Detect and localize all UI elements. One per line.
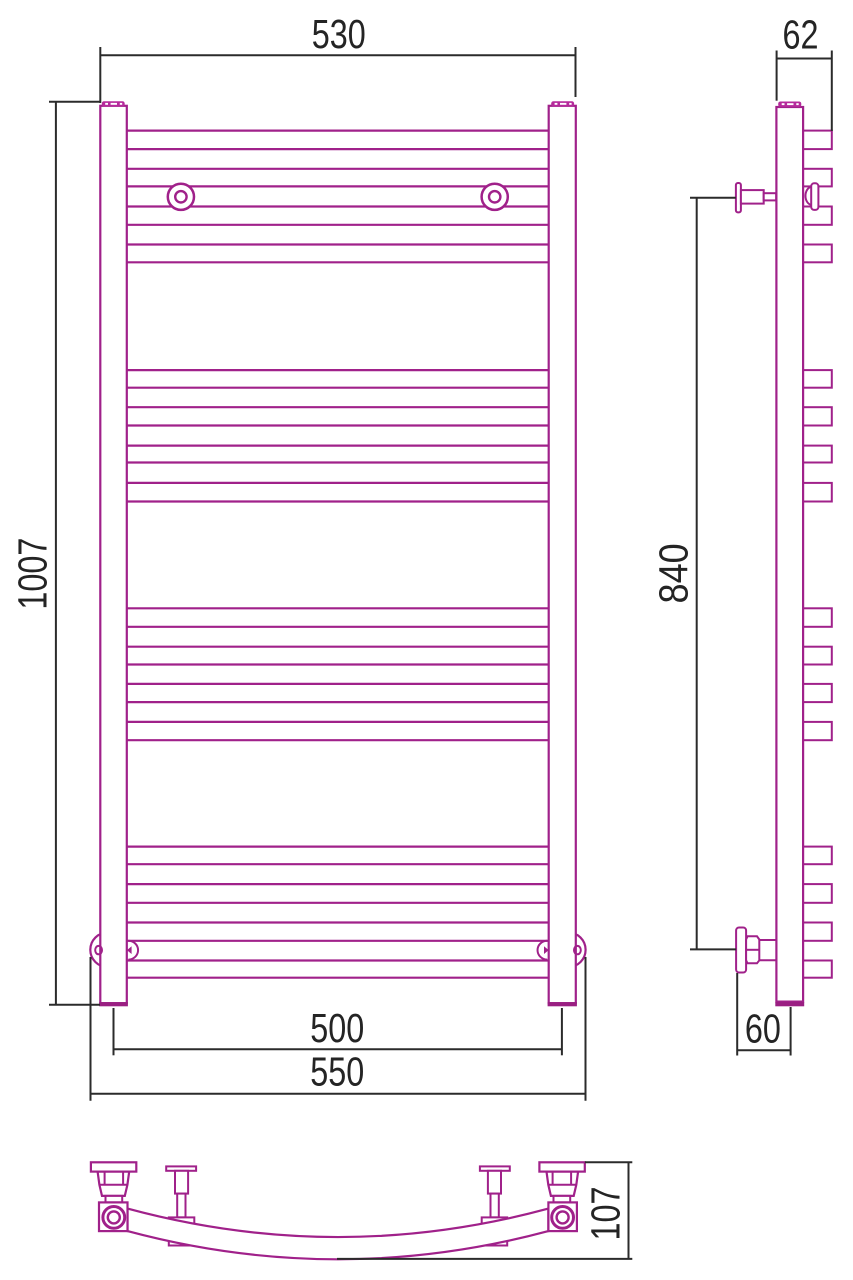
svg-text:107: 107 [583, 1186, 628, 1240]
svg-text:530: 530 [312, 11, 366, 56]
svg-text:60: 60 [745, 1006, 781, 1051]
svg-text:1007: 1007 [10, 538, 55, 610]
svg-text:62: 62 [782, 12, 818, 57]
svg-text:840: 840 [651, 543, 697, 603]
svg-text:550: 550 [310, 1049, 364, 1094]
svg-text:500: 500 [310, 1005, 364, 1050]
